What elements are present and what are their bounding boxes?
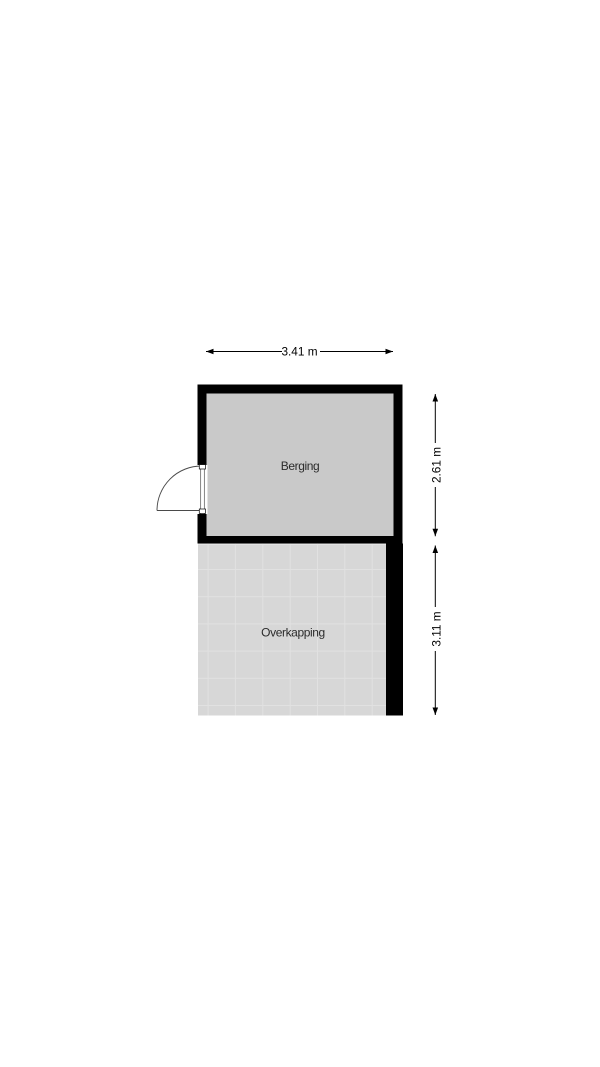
svg-text:Overkapping: Overkapping [261, 626, 325, 640]
svg-text:3.11 m: 3.11 m [429, 611, 443, 646]
svg-text:2.61 m: 2.61 m [429, 447, 443, 483]
svg-text:Berging: Berging [281, 459, 320, 473]
svg-text:3.41 m: 3.41 m [281, 345, 317, 359]
